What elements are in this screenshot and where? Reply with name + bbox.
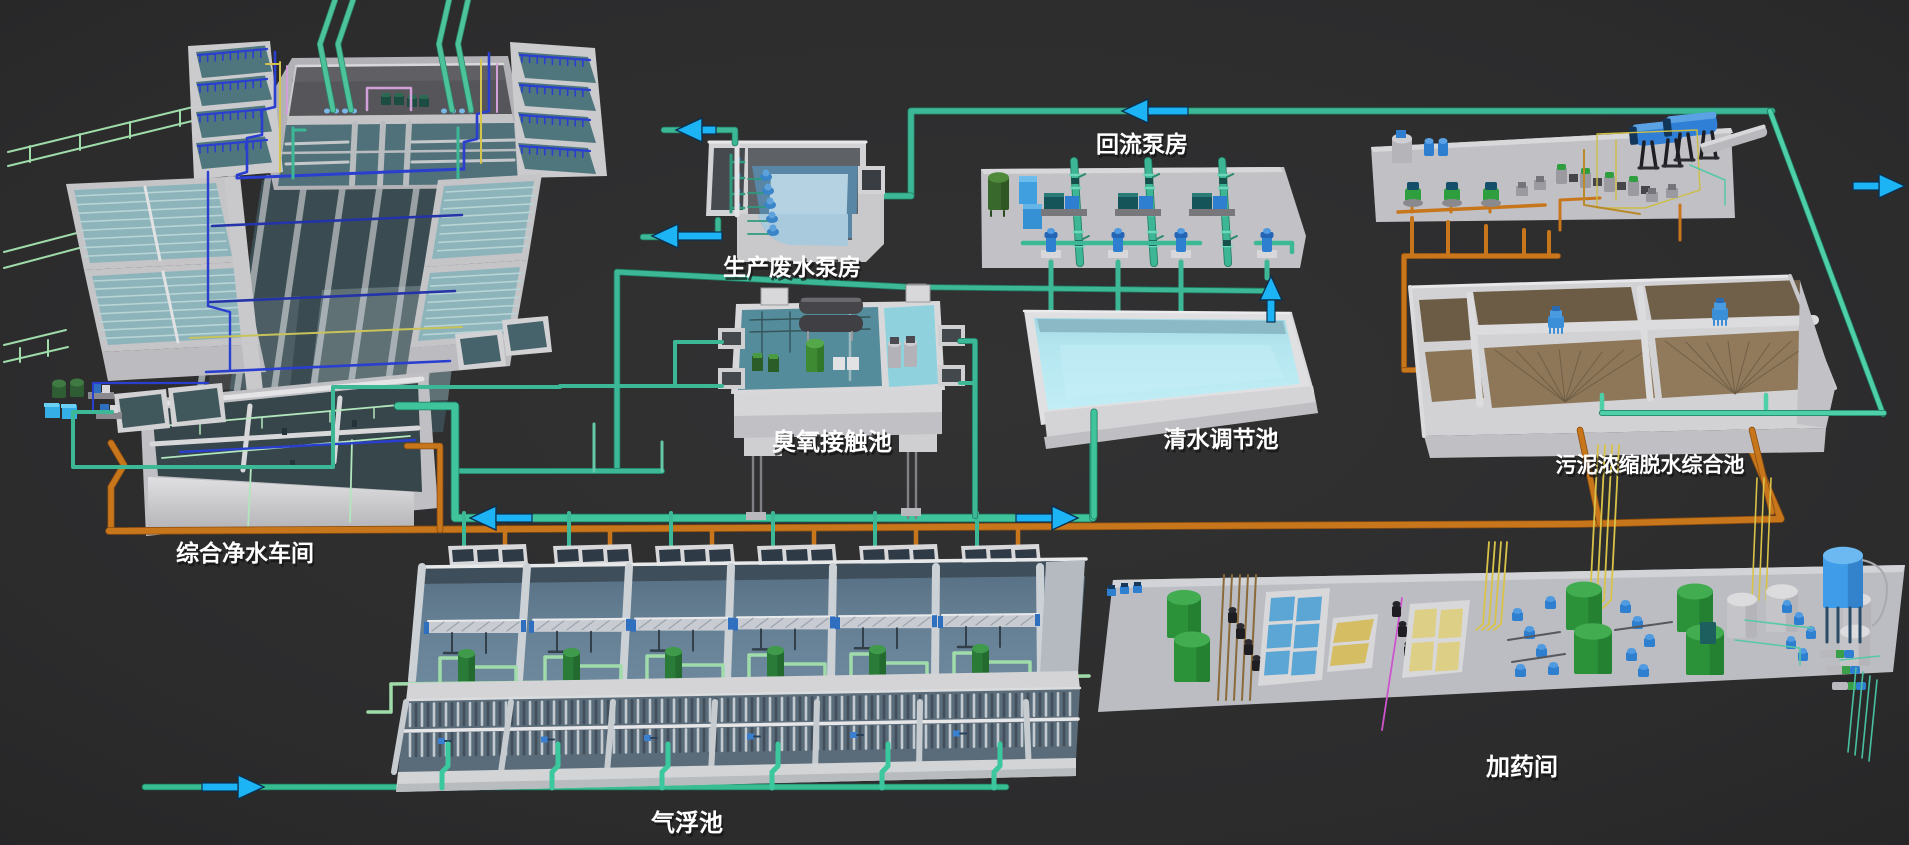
- svg-text:污泥浓缩脱水综合池: 污泥浓缩脱水综合池: [1556, 453, 1745, 477]
- svg-text:加药间: 加药间: [1486, 754, 1558, 781]
- svg-text:回流泵房: 回流泵房: [1096, 131, 1188, 157]
- svg-text:气浮池: 气浮池: [650, 809, 723, 837]
- svg-text:综合净水车间: 综合净水车间: [176, 540, 314, 566]
- svg-text:臭氧接触池: 臭氧接触池: [772, 428, 892, 456]
- svg-text:清水调节池: 清水调节池: [1164, 426, 1279, 452]
- svg-text:生产废水泵房: 生产废水泵房: [723, 254, 861, 280]
